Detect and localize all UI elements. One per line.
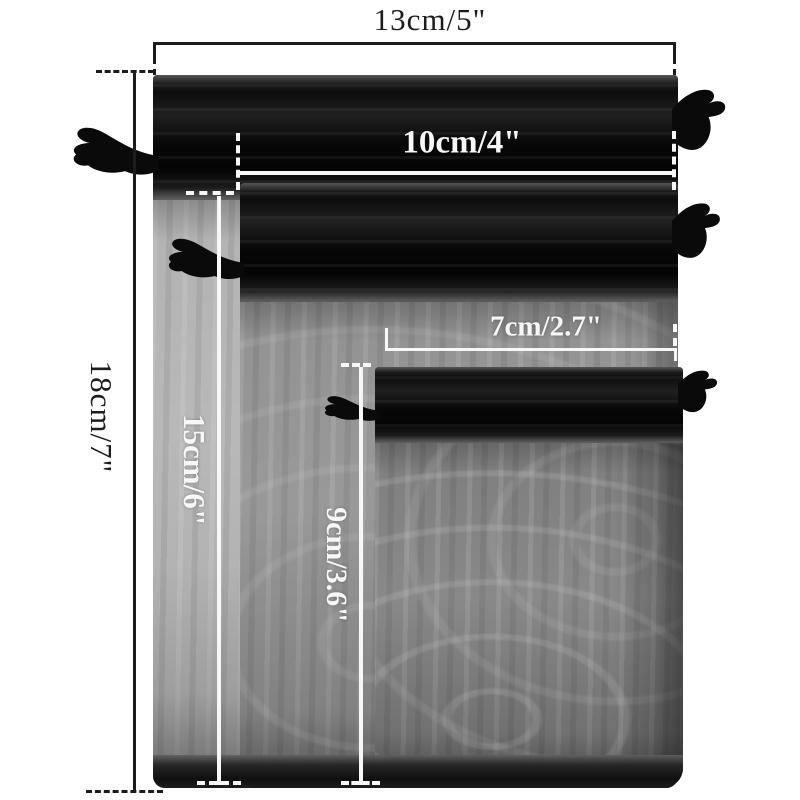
bag-small-drawstring-channel [375,367,683,443]
dimension-tick-width-small-left [385,328,388,351]
dimension-tick-width-medium-right [672,131,676,190]
product-photo-organza-bags: 13cm/5" 18cm/7" 10cm/4" 15cm/6" 7cm/2.7"… [0,0,800,800]
dimension-label-width-small: 7cm/2.7" [490,311,602,344]
dimension-tick-height-medium-top [186,191,234,195]
dimension-tick-height-small-bottom [341,781,380,785]
dimension-tick-height-medium-bottom [197,781,241,785]
dimension-line-width-medium [240,171,676,175]
drawstring-knot-small-right [678,368,722,426]
bag-medium-drawstring-channel [240,183,678,302]
drawstring-knot-large-right [672,86,732,170]
dimension-label-height-large: 18cm/7" [83,361,119,474]
dimension-line-height-small [359,367,363,785]
dimension-label-height-small: 9cm/3.6" [319,507,353,623]
dimension-tick-width-small-right [674,348,677,361]
dimension-label-width-large: 13cm/5" [374,2,487,38]
drawstring-knot-medium-right [672,200,726,276]
bag-small-body [375,443,683,788]
bag-small [375,367,683,788]
dimension-line-height-large [133,72,136,792]
dimension-line-width-small [385,348,677,351]
drawstring-knot-small-left [320,392,380,430]
drawstring-knot-medium-left [162,232,244,294]
dimension-line-width-large [153,42,676,45]
dimension-tick-height-large-top [96,70,154,73]
drawstring-knot-large-left [66,120,158,192]
dimension-leader-width-large-right [673,58,676,75]
dimension-tick-width-large-left [153,42,156,58]
dimension-tick-height-large-bottom [86,790,163,793]
dimension-leader-width-small-right [673,324,677,346]
dimension-tick-height-small-top [341,363,371,367]
dimension-label-height-medium: 15cm/6" [176,414,212,526]
dimension-tick-width-medium-left [236,133,240,190]
dimension-line-height-medium [217,196,221,785]
dimension-label-width-medium: 10cm/4" [402,125,521,162]
dimension-tick-width-large-right [673,42,676,58]
bag-small-bottom-seam [375,755,683,788]
